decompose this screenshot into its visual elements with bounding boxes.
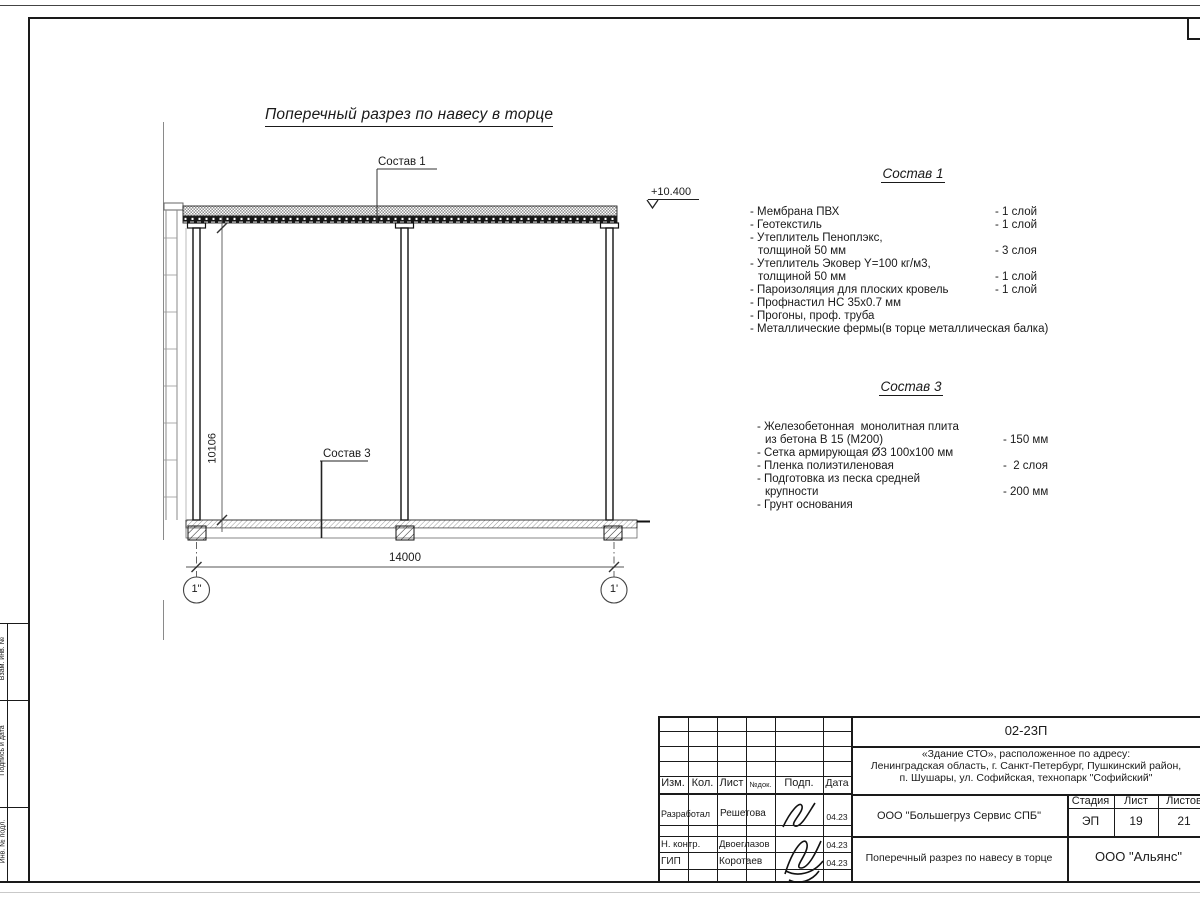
list-item: - Геотекстиль- 1 слой <box>750 219 1190 232</box>
stage-header: Стадия <box>1067 795 1114 807</box>
elevation-value: +10.400 <box>651 186 691 199</box>
list-item: - Прогоны, проф. труба <box>750 310 1190 323</box>
company-name: ООО "Большегруз Сервис СПБ" <box>851 810 1067 822</box>
list-item: - Железобетонная монолитная плита <box>757 421 1197 434</box>
floor-slab <box>186 520 650 540</box>
dim-height-value: 10106 <box>207 423 220 473</box>
axis-left-label: 1" <box>185 583 208 596</box>
row-role-ncontr: Н. контр. <box>661 839 700 850</box>
col-header-kol: Кол. <box>688 777 717 789</box>
col-header-podp: Подп. <box>775 777 823 789</box>
list-item: - Подготовка из песка средней <box>757 473 1197 486</box>
sheets-header: Листов <box>1158 795 1200 807</box>
row-date-ncontr: 04.23 <box>823 840 851 850</box>
dim-vertical <box>186 215 227 532</box>
object-address-line3: п. Шушары, ул. Софийская, технопарк "Соф… <box>851 772 1200 784</box>
doc-code: 02-23П <box>851 723 1200 738</box>
drawing-title: Поперечный разрез по навесу в торце <box>265 106 553 127</box>
sostav3-heading: Состав 3 <box>846 379 976 394</box>
drawing-sheet: Взам. инв. № Подпись и дата Инв. № подл. <box>0 0 1200 900</box>
col-header-list: Лист <box>717 777 746 789</box>
sheets-value: 21 <box>1158 814 1200 828</box>
list-item: - Металлические фермы(в торце металличес… <box>750 323 1190 336</box>
org-name: ООО "Альянс" <box>1067 849 1200 864</box>
col-header-ndok: №док. <box>746 780 775 789</box>
col-header-data: Дата <box>823 777 851 789</box>
list-item: - Сетка армирующая Ø3 100х100 мм <box>757 447 1197 460</box>
sheet-value: 19 <box>1114 814 1158 828</box>
list-item: толщиной 50 мм- 3 слоя <box>750 245 1190 258</box>
sheet-header: Лист <box>1114 795 1158 807</box>
sostav1-heading: Состав 1 <box>848 166 978 181</box>
dim-width-value: 14000 <box>375 552 435 565</box>
sostav1-list: - Мембрана ПВХ- 1 слой - Геотекстиль- 1 … <box>750 206 1190 336</box>
list-item: толщиной 50 мм- 1 слой <box>750 271 1190 284</box>
stage-value: ЭП <box>1067 814 1114 828</box>
leader-sostav3-label: Состав 3 <box>323 448 371 461</box>
list-item: - Профнастил НС 35х0.7 мм <box>750 297 1190 310</box>
list-item: - Грунт основания <box>757 499 1197 512</box>
columns <box>188 223 619 520</box>
row-name-gip: Коротаев <box>719 856 762 867</box>
row-name-developer: Решетова <box>720 808 766 819</box>
axis-right-label: 1' <box>604 583 624 596</box>
drawing-name-cell: Поперечный разрез по навесу в торце <box>851 852 1067 864</box>
adjacent-wall <box>164 122 184 640</box>
elevation-mark <box>647 200 699 209</box>
row-role-gip: ГИП <box>661 856 681 867</box>
row-role-developer: Разработал <box>661 809 710 819</box>
list-item: - Утеплитель Эковер Y=100 кг/м3, <box>750 258 1190 271</box>
list-item: - Утеплитель Пеноплэкс, <box>750 232 1190 245</box>
signature-gip <box>785 841 823 882</box>
col-header-izm: Изм. <box>658 777 688 789</box>
sostav3-list: - Железобетонная монолитная плита из бет… <box>757 421 1197 512</box>
list-item: - Пленка полиэтиленовая- 2 слоя <box>757 460 1197 473</box>
list-item: - Пароизоляция для плоских кровель- 1 сл… <box>750 284 1190 297</box>
list-item: крупности- 200 мм <box>757 486 1197 499</box>
object-address-line2: Ленинградская область, г. Санкт-Петербур… <box>851 760 1200 772</box>
row-date-gip: 04.23 <box>823 858 851 868</box>
signature-developer <box>783 803 815 827</box>
row-date-developer: 04.23 <box>823 812 851 822</box>
row-name-ncontr: Двоеглазов <box>719 839 770 850</box>
leader-sostav1-label: Состав 1 <box>378 156 426 169</box>
object-address-line1: «Здание СТО», расположенное по адресу: <box>851 748 1200 760</box>
roof-package <box>183 206 617 223</box>
list-item: - Мембрана ПВХ- 1 слой <box>750 206 1190 219</box>
list-item: из бетона В 15 (М200)- 150 мм <box>757 434 1197 447</box>
